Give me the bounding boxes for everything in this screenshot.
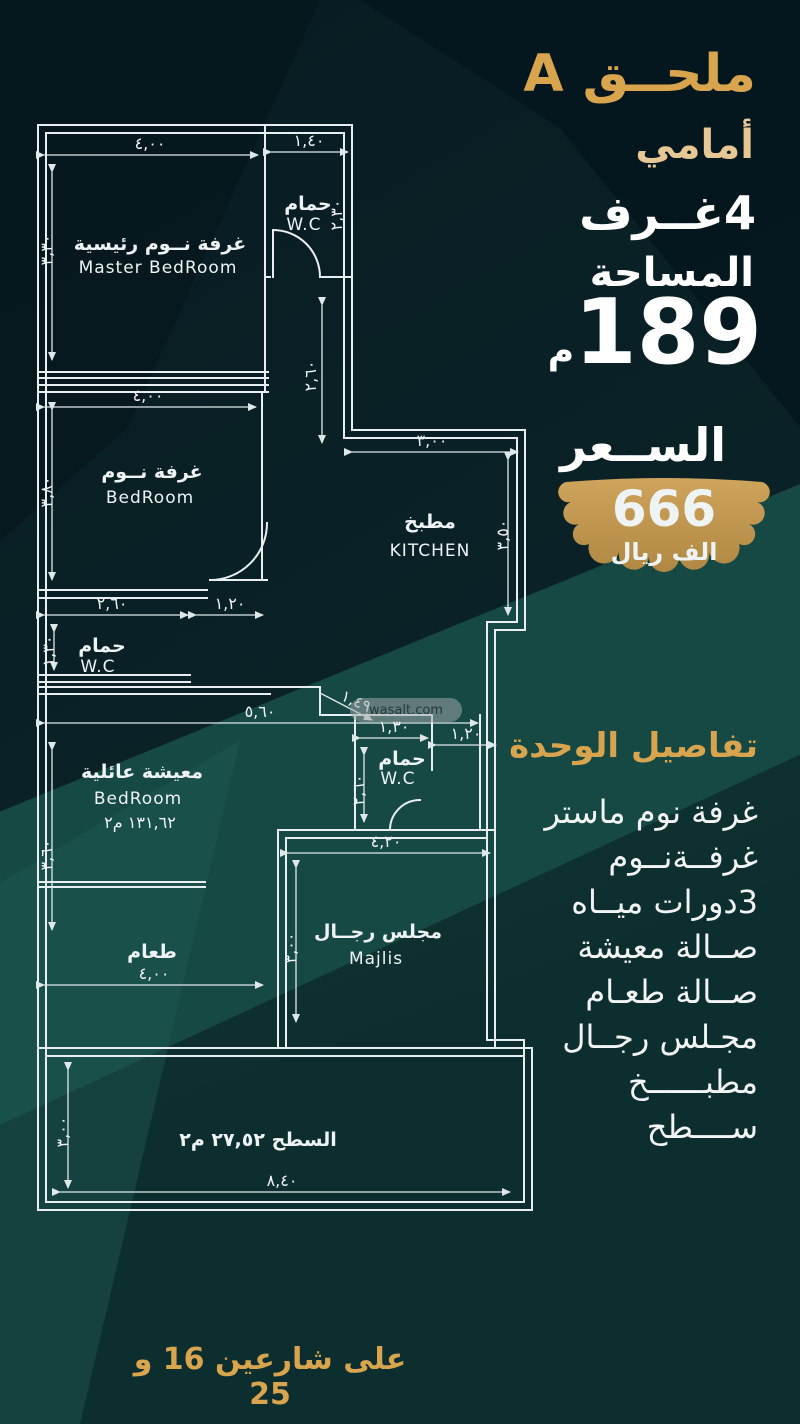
room-wc-mid: ١,٣٠ ١,٢٠ حمام W.C ٢,٦٠ — [349, 717, 496, 822]
room-living-label-en: BedRoom — [94, 789, 182, 809]
footer-streets: على شارعين 16 و 25 — [120, 1342, 420, 1412]
area-value: 189م — [548, 288, 762, 378]
room-master-label-en: Master BedRoom — [79, 258, 238, 278]
room-kitchen-label-en: KITCHEN — [390, 541, 471, 561]
detail-item: صــالة معيشة — [545, 925, 758, 970]
dim-wc-left-w2: ١,٢٠ — [215, 594, 246, 613]
room-living-label-ar: معيشة عائلية — [81, 761, 203, 783]
room-bedroom: ٤,٠٠ ٣,٨٠ غرفة نــوم BedRoom — [37, 386, 256, 580]
annex-subtitle: أمامي — [635, 122, 754, 168]
room-master: ٤,٠٠ ٣,٣٠ غرفة نــوم رئيسية Master BedRo… — [37, 134, 258, 360]
price-label: الســعر — [560, 418, 726, 472]
price-badge: 666 الف ريال — [552, 468, 776, 588]
room-wc-top-label-ar: حمام — [284, 193, 332, 215]
dim-wc-top-width: ١,٤٠ — [294, 131, 325, 150]
dim-roof-width: ٨,٤٠ — [267, 1171, 298, 1190]
dim-wc-left-w1: ٢,٦٠ — [97, 594, 128, 613]
dim-bedroom-height: ٣,٨٠ — [37, 477, 56, 508]
room-majlis-label-ar: مجلس رجــال — [314, 921, 442, 943]
detail-item: مجـلس رجــال — [545, 1015, 758, 1060]
details-list: غرفة نوم ماستر غرفــةنــوم 3دورات ميــاه… — [545, 790, 758, 1150]
dim-wc-mid-right: ١,٢٠ — [451, 724, 482, 743]
room-roof: السطح ٢٧,٥٢ م٢ ٨,٤٠ ٣,٠٠ — [53, 1070, 510, 1192]
price-unit: الف ريال — [611, 538, 718, 566]
door-arcs — [210, 230, 420, 830]
room-dining: طعام ٤,٠٠ — [44, 941, 263, 985]
dim-wc-top-height: ٢,٣٠ — [327, 200, 346, 231]
dim-roof-height: ٣,٠٠ — [53, 1117, 72, 1148]
dim-wc-left-height: ١,٣٠ — [39, 636, 58, 667]
dim-living-height: ٣,٦٠ — [37, 840, 56, 871]
detail-item: ســــطح — [545, 1105, 758, 1150]
dim-master-height: ٣,٣٠ — [37, 235, 56, 266]
room-master-label-ar: غرفة نــوم رئيسية — [74, 233, 246, 255]
price-value: 666 — [612, 480, 716, 538]
dim-dining-width: ٤,٠٠ — [139, 964, 170, 983]
annex-title: ملحــق A — [523, 44, 756, 104]
dim-majlis-height: ٣,٠٠ — [281, 933, 300, 964]
room-bedroom-label-ar: غرفة نــوم — [101, 461, 202, 483]
dim-hall-width: ٥,٦٠ — [245, 702, 276, 721]
room-wc-mid-label-en: W.C — [380, 769, 415, 789]
rooms-count: 4غــرف — [579, 186, 756, 240]
room-kitchen-label-ar: مطبخ — [404, 511, 456, 533]
detail-item: صــالة طعـام — [545, 970, 758, 1015]
room-roof-label: السطح ٢٧,٥٢ م٢ — [179, 1129, 337, 1151]
room-living: معيشة عائلية BedRoom ١٣١,٦٢ م٢ ٣,٦٠ — [37, 750, 203, 930]
dim-bedroom-width: ٤,٠٠ — [133, 386, 164, 405]
details-title: تفاصيل الوحدة — [509, 726, 758, 766]
room-wc-left-label-ar: حمام — [78, 635, 126, 657]
room-wc-mid-label-ar: حمام — [378, 748, 426, 770]
dim-kitchen-width: ٣,٠٠ — [417, 431, 448, 450]
dim-master-width: ٤,٠٠ — [135, 134, 166, 153]
dim-corridor: ٢,٦٠ — [301, 361, 320, 392]
area-number: 189 — [574, 280, 762, 385]
corridor-dim: ٢,٦٠ — [301, 305, 322, 443]
room-dining-label-ar: طعام — [127, 941, 177, 963]
watermark: wasalt.com — [350, 698, 462, 722]
dim-kitchen-height: ٣,٥٠ — [493, 520, 512, 551]
dim-wc-mid-height: ٢,٦٠ — [349, 775, 368, 806]
room-wc-top-label-en: W.C — [286, 215, 321, 235]
room-wc-left-label-en: W.C — [80, 657, 115, 677]
room-wc-top: ١,٤٠ حمام W.C ٢,٣٠ — [271, 131, 348, 235]
watermark-text: wasalt.com — [369, 703, 443, 718]
room-kitchen: ٣,٠٠ ٣,٥٠ مطبخ KITCHEN — [352, 431, 518, 615]
dim-majlis-width: ٤,٢٠ — [371, 832, 402, 851]
room-wc-left: ٢,٦٠ ١,٢٠ حمام W.C ١,٣٠ — [39, 594, 263, 677]
area-unit: م — [548, 331, 574, 372]
floor-plan: ٤,٠٠ ٣,٣٠ غرفة نــوم رئيسية Master BedRo… — [20, 110, 540, 1230]
detail-item: 3دورات ميــاه — [545, 880, 758, 925]
detail-item: غرفة نوم ماستر — [545, 790, 758, 835]
room-majlis-label-en: Majlis — [349, 949, 403, 969]
detail-item: مطبــــــخ — [545, 1060, 758, 1105]
room-bedroom-label-en: BedRoom — [106, 488, 194, 508]
room-majlis: ٤,٢٠ ٣,٠٠ مجلس رجــال Majlis — [281, 832, 490, 1022]
detail-item: غرفــةنــوم — [545, 835, 758, 880]
room-living-area: ١٣١,٦٢ م٢ — [104, 813, 176, 832]
